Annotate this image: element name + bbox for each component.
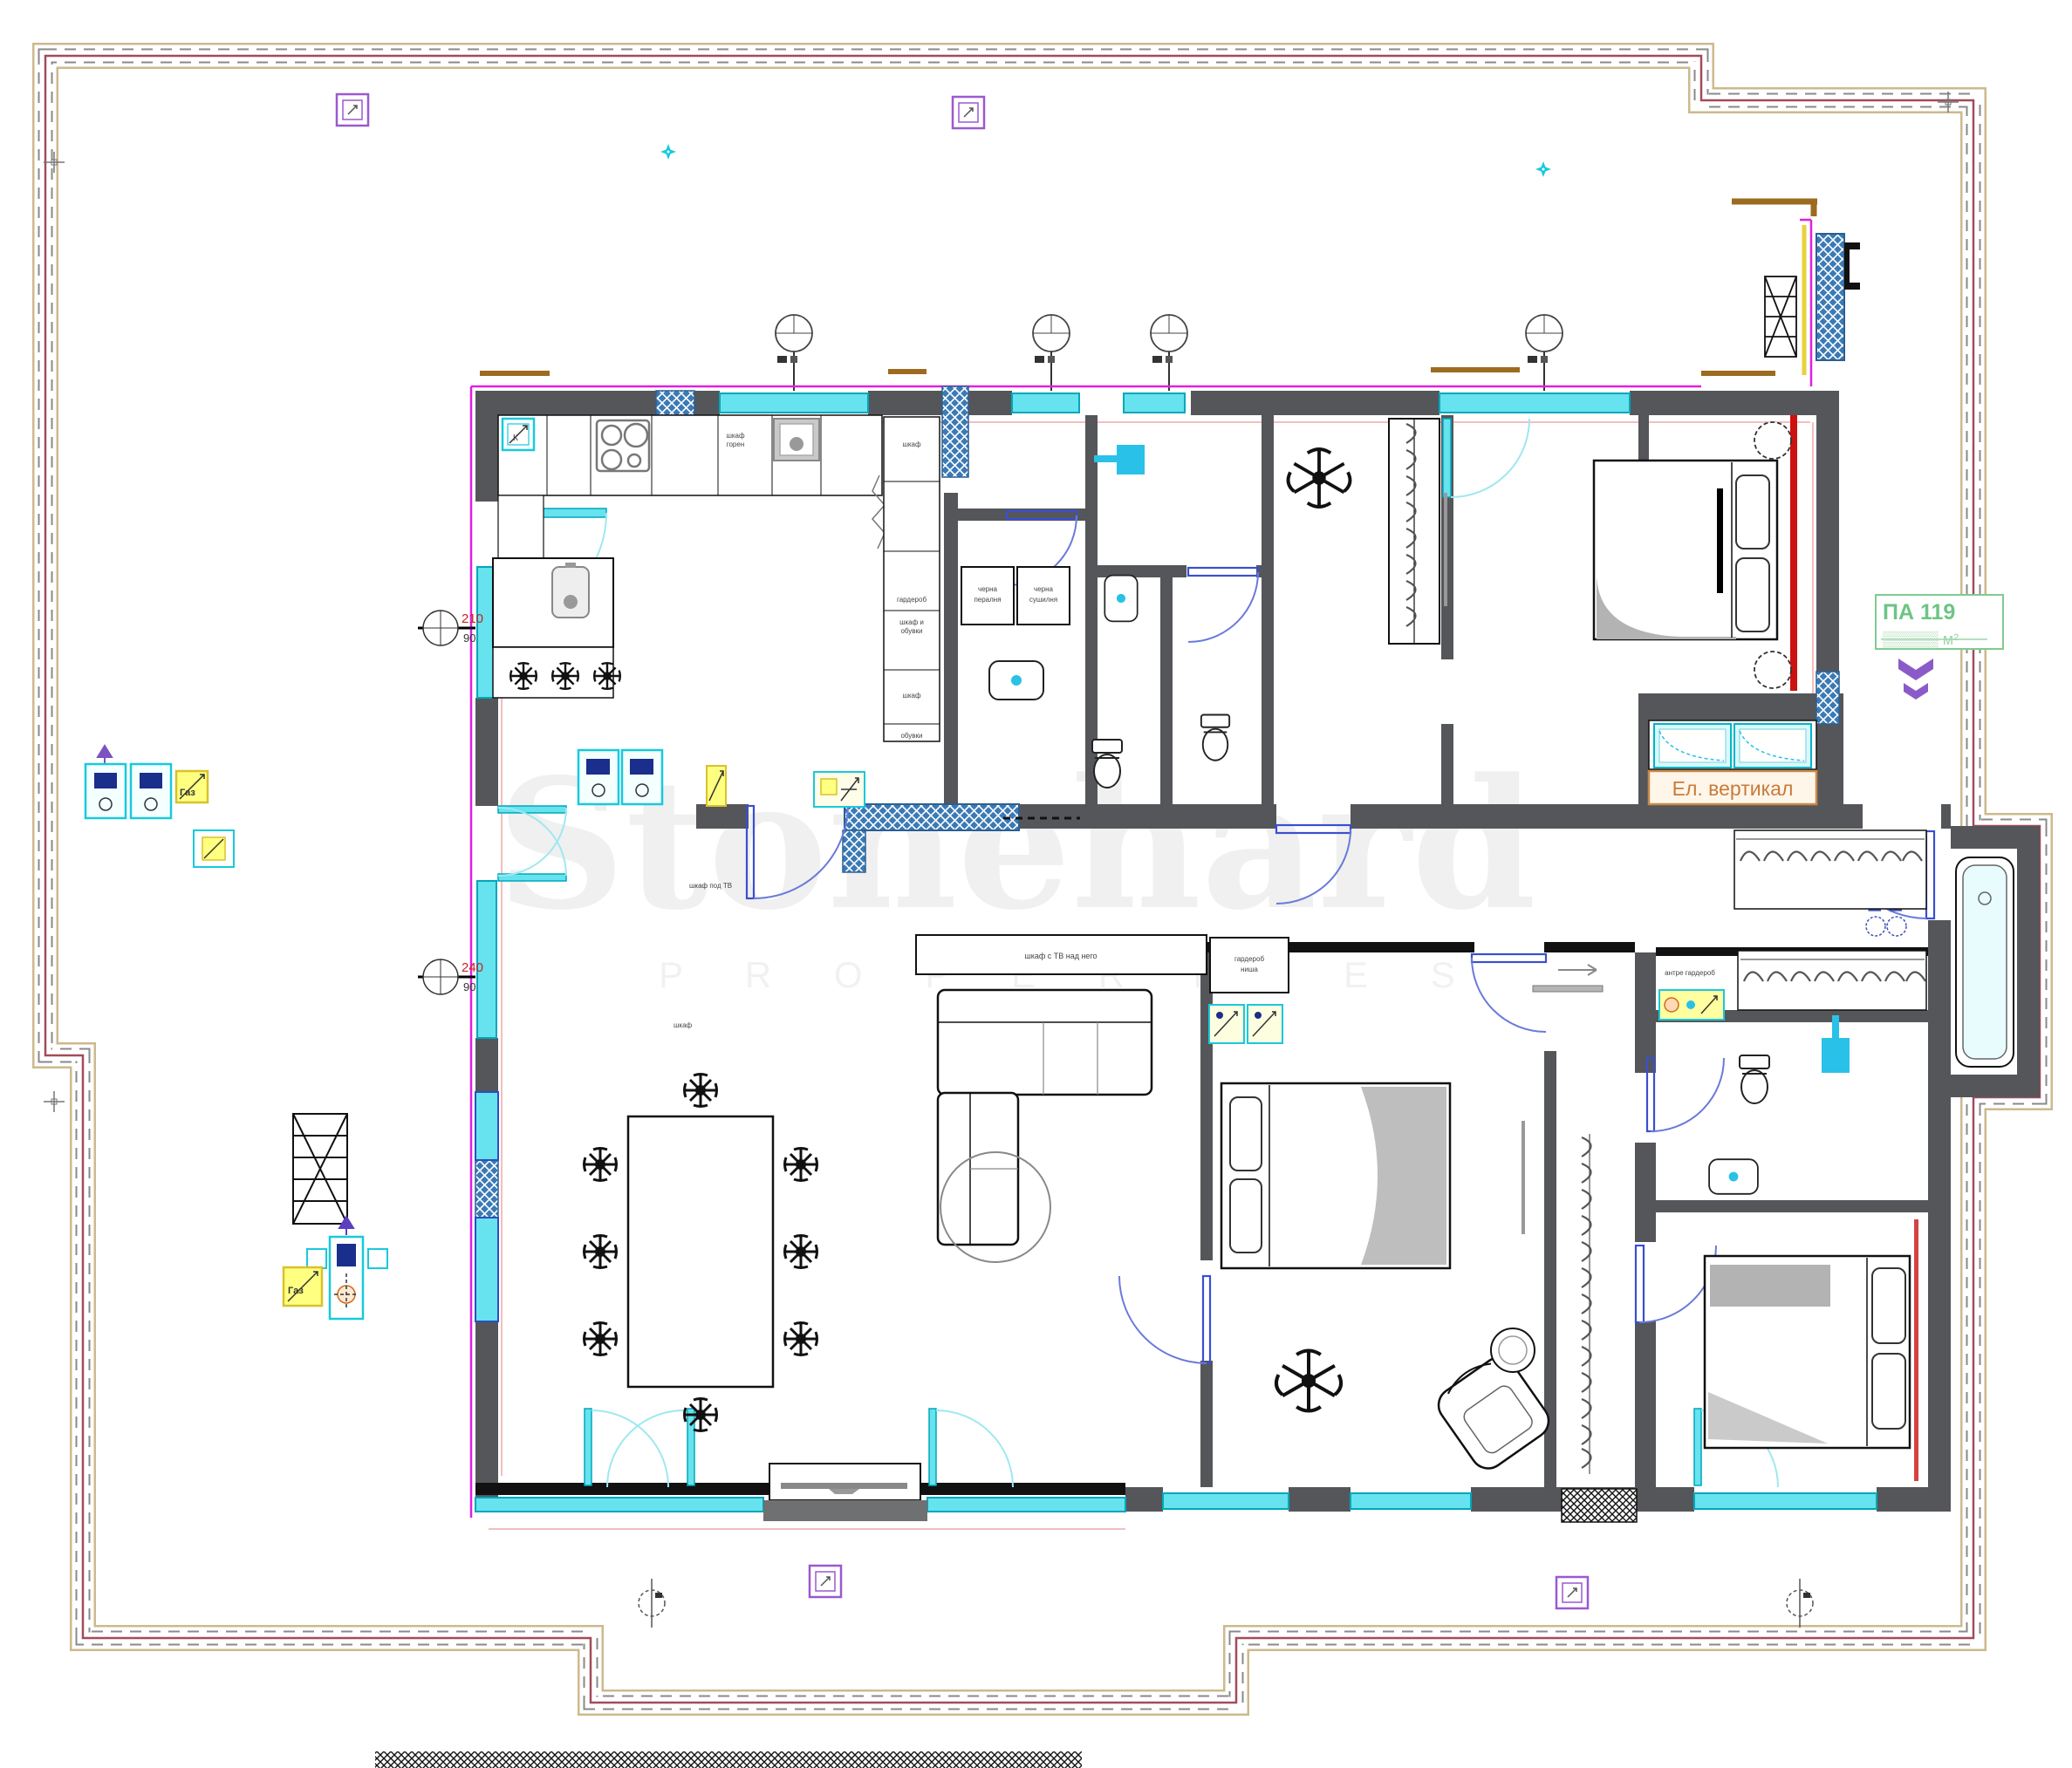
electrical-group-lower-left: Газ <box>284 1217 387 1319</box>
bed <box>1221 1083 1450 1268</box>
window <box>475 1498 763 1512</box>
unit-label-box: ПА 119 ▒▒▒▒▒ м² <box>1876 595 2003 649</box>
dim-sub: 90 <box>463 631 475 645</box>
sink-icon <box>989 661 1043 700</box>
switch-strip <box>707 766 726 806</box>
toilet-icon <box>1201 715 1229 761</box>
ceiling-fan-icon <box>1289 449 1351 507</box>
dim-main: 210 <box>462 611 483 626</box>
corner-switch-box: К <box>503 419 534 450</box>
shower-head-icon <box>1094 445 1145 474</box>
dimension-marker-2: 240 90 <box>418 959 483 994</box>
electrical-shaft: Ел. вертикал <box>1649 720 1816 804</box>
chair-icon <box>585 1236 617 1268</box>
kitchen-sink-icon <box>774 419 819 461</box>
bedroom-3 <box>1705 1219 1918 1481</box>
window <box>1163 1493 1289 1509</box>
door-swing-arc <box>1651 1058 1724 1131</box>
side-table <box>1491 1328 1535 1372</box>
electrical-group-left: Газ <box>85 746 208 818</box>
accent-wall <box>1914 1219 1918 1481</box>
cabinet-label: обувки <box>900 627 922 635</box>
sliding-door-track <box>1522 1121 1525 1234</box>
wardrobe-label: ниша <box>1241 966 1258 973</box>
door-leaf <box>1203 1276 1210 1363</box>
corridor: антре гардероб <box>1533 830 1926 1010</box>
window <box>1351 1493 1471 1509</box>
sideboard-label: шкаф <box>674 1021 693 1029</box>
bed <box>1705 1256 1910 1448</box>
accent-wall <box>1790 415 1797 691</box>
entrance-mat <box>1562 1489 1637 1522</box>
door-leaf <box>1926 831 1934 918</box>
chair-icon <box>585 1323 617 1355</box>
level-marker <box>1033 315 1070 391</box>
axis-marker <box>1787 1579 1813 1628</box>
north-symbol <box>1898 659 1933 700</box>
door-leaf <box>929 1409 936 1485</box>
switch-group <box>814 772 865 807</box>
chair-icon <box>785 1149 817 1181</box>
pillow <box>1230 1097 1262 1171</box>
window <box>477 881 496 1038</box>
bedroom-1 <box>1594 415 1797 691</box>
boundary-cross-marker <box>44 1091 65 1112</box>
bed <box>1594 461 1777 639</box>
cabinet-label: обувки <box>900 732 922 740</box>
gas-label: Газ <box>180 788 195 798</box>
sink-icon <box>1709 1159 1758 1194</box>
camera-symbol-box <box>1556 1577 1588 1608</box>
axis-marker <box>639 1579 665 1628</box>
window <box>1694 1493 1877 1509</box>
survey-point-icon <box>660 144 676 160</box>
door-leaf <box>1694 1409 1701 1485</box>
pillow <box>1872 1268 1905 1343</box>
bathtub-icon <box>1956 857 2014 1067</box>
toilet-icon <box>1740 1055 1769 1103</box>
cabinet-label: гардероб <box>897 596 927 604</box>
pillow <box>1872 1354 1905 1429</box>
kitchen-cabinet-label: горен <box>727 440 745 448</box>
shaft-label: Ел. вертикал <box>1672 777 1794 800</box>
pillow <box>1230 1179 1262 1253</box>
floor-plan-svg: Stonehard P R O P E R T I E S <box>0 0 2072 1768</box>
tv-shelf-label: шкаф с ТВ над него <box>1024 952 1097 960</box>
gas-box: Газ <box>176 771 208 802</box>
cabinet-label: шкаф <box>902 440 921 448</box>
gas-box: Газ <box>284 1267 322 1306</box>
door-swing-arc <box>1119 1276 1207 1363</box>
floor-plan-page: Stonehard P R O P E R T I E S <box>0 0 2072 1768</box>
gas-label: Газ <box>288 1286 304 1296</box>
bedroom-2 <box>1221 1083 1591 1475</box>
armchair <box>1430 1348 1556 1475</box>
ceiling-fan-icon <box>1276 1351 1341 1411</box>
sliding-door-track <box>1444 493 1447 606</box>
hall-cabinet-column: шкаф гардероб шкаф и обувки шкаф обувки <box>884 417 940 741</box>
door-leaf <box>585 1409 592 1485</box>
wardrobe-label: гардероб <box>1234 955 1264 963</box>
door-leaf <box>498 806 566 813</box>
chair-icon <box>585 1149 617 1181</box>
door-leaf <box>1188 568 1258 576</box>
survey-point-icon <box>1535 161 1551 177</box>
dryer-label: сушилня <box>1029 596 1057 604</box>
under-tv-label: шкаф под ТВ <box>689 882 732 890</box>
corner-box-label: К <box>513 433 518 443</box>
direction-arrow <box>1558 965 1597 975</box>
window <box>927 1498 1125 1512</box>
door-leaf <box>1443 419 1451 497</box>
door-swing-arc <box>1451 419 1529 497</box>
dryer-label: черна <box>1034 585 1053 593</box>
sofa <box>938 990 1152 1245</box>
wardrobe-room <box>1289 419 1447 644</box>
door-swing-arc <box>592 1410 668 1487</box>
door-leaf <box>1472 954 1546 962</box>
pillow <box>1736 558 1769 631</box>
tv-stand <box>763 1464 927 1521</box>
camera-symbol-box <box>337 94 368 126</box>
switch-pair-bedroom2 <box>1209 1005 1282 1043</box>
kitchen: К шкаф горен <box>493 415 885 698</box>
cabinet-label: шкаф <box>902 692 921 700</box>
door-leaf <box>1636 1246 1644 1322</box>
washer-label: пералня <box>974 596 1001 604</box>
dim-main: 240 <box>462 960 483 975</box>
window <box>475 1218 498 1321</box>
pillow <box>1736 475 1769 549</box>
dining-table <box>628 1116 773 1387</box>
sink-icon <box>1104 576 1137 622</box>
washer-label: черна <box>978 585 997 593</box>
bottom-section-band <box>375 1751 1082 1768</box>
window <box>720 393 868 413</box>
ladder-symbol <box>1765 276 1796 357</box>
window <box>1124 393 1185 413</box>
cabinet-label: шкаф и <box>899 618 924 626</box>
switch-box <box>194 830 234 867</box>
level-marker <box>1526 315 1563 391</box>
window <box>475 1092 498 1160</box>
dimension-marker-1: 210 90 <box>418 611 483 645</box>
camera-symbol-box <box>953 97 984 128</box>
chair-icon <box>785 1323 817 1355</box>
level-marker <box>1151 315 1187 391</box>
window <box>1439 393 1630 413</box>
window <box>1012 393 1079 413</box>
kitchen-cabinet-label: шкаф <box>726 432 745 440</box>
camera-symbol-box <box>810 1566 841 1597</box>
toilet-icon <box>1092 740 1122 788</box>
door-swing-arc <box>607 1410 684 1487</box>
dim-sub: 90 <box>463 980 475 993</box>
door-swing-arc <box>1472 958 1546 1032</box>
island-sink-icon <box>552 567 589 618</box>
chair-icon <box>685 1075 717 1107</box>
nightstand <box>1754 422 1791 459</box>
shower-head-icon <box>1822 1015 1850 1073</box>
level-marker <box>776 315 812 391</box>
ladder-symbol <box>293 1114 347 1224</box>
closet <box>1734 830 1926 909</box>
door-swing-arc <box>936 1410 1013 1487</box>
hall-closet-label: антре гардероб <box>1665 969 1715 977</box>
chair-icon <box>785 1236 817 1268</box>
door-swing-arc <box>1188 572 1258 642</box>
sliding-door-track <box>1533 986 1603 992</box>
nightstand <box>1754 652 1791 688</box>
unit-code: ПА 119 <box>1883 600 1955 625</box>
switch-strip-entry <box>1659 990 1724 1020</box>
tv-icon <box>781 1483 907 1489</box>
